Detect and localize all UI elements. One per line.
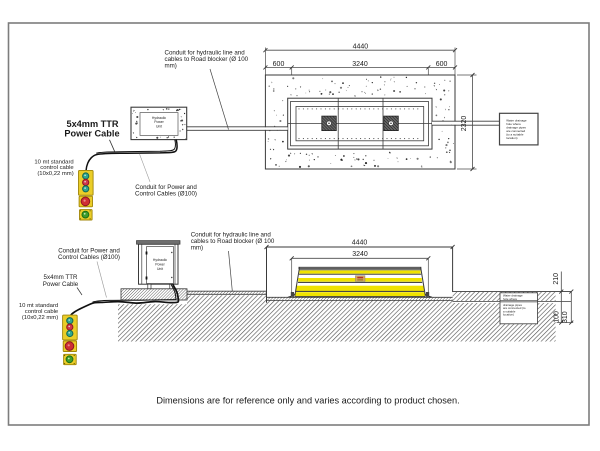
svg-text:Power: Power — [155, 262, 165, 266]
svg-text:Control Cables (Ø100): Control Cables (Ø100) — [135, 191, 197, 198]
svg-text:Unit: Unit — [156, 125, 162, 129]
svg-text:2320: 2320 — [461, 116, 468, 132]
svg-text:4440: 4440 — [353, 44, 369, 51]
svg-text:Power Cable: Power Cable — [64, 129, 119, 139]
svg-text:cables to Road blocker (Ø 100: cables to Road blocker (Ø 100 — [165, 56, 249, 63]
svg-text:(10x0,22 mm): (10x0,22 mm) — [22, 315, 58, 321]
svg-text:location): location) — [503, 313, 514, 317]
svg-text:210: 210 — [553, 273, 560, 285]
svg-text:600: 600 — [273, 61, 285, 68]
svg-text:(10x0,22 mm): (10x0,22 mm) — [37, 171, 73, 177]
svg-text:Power Cable: Power Cable — [43, 281, 79, 288]
svg-text:100: 100 — [554, 311, 561, 323]
svg-text:Unit: Unit — [157, 267, 163, 271]
svg-text:mm): mm) — [191, 245, 203, 252]
svg-text:310: 310 — [562, 311, 569, 323]
svg-text:3240: 3240 — [352, 61, 368, 68]
svg-text:3240: 3240 — [352, 251, 368, 258]
svg-text:4440: 4440 — [352, 240, 368, 247]
svg-text:location): location) — [506, 136, 517, 140]
svg-text:Hydraulic: Hydraulic — [153, 258, 167, 262]
svg-text:Control Cables (Ø100): Control Cables (Ø100) — [58, 254, 120, 261]
svg-text:cables to Road blocker (Ø 100: cables to Road blocker (Ø 100 — [191, 238, 275, 245]
svg-text:5x4mm TTR: 5x4mm TTR — [66, 119, 118, 129]
svg-text:mm): mm) — [165, 63, 177, 70]
svg-text:Dimensions are for reference o: Dimensions are for reference only and va… — [156, 396, 459, 406]
svg-text:600: 600 — [436, 61, 448, 68]
